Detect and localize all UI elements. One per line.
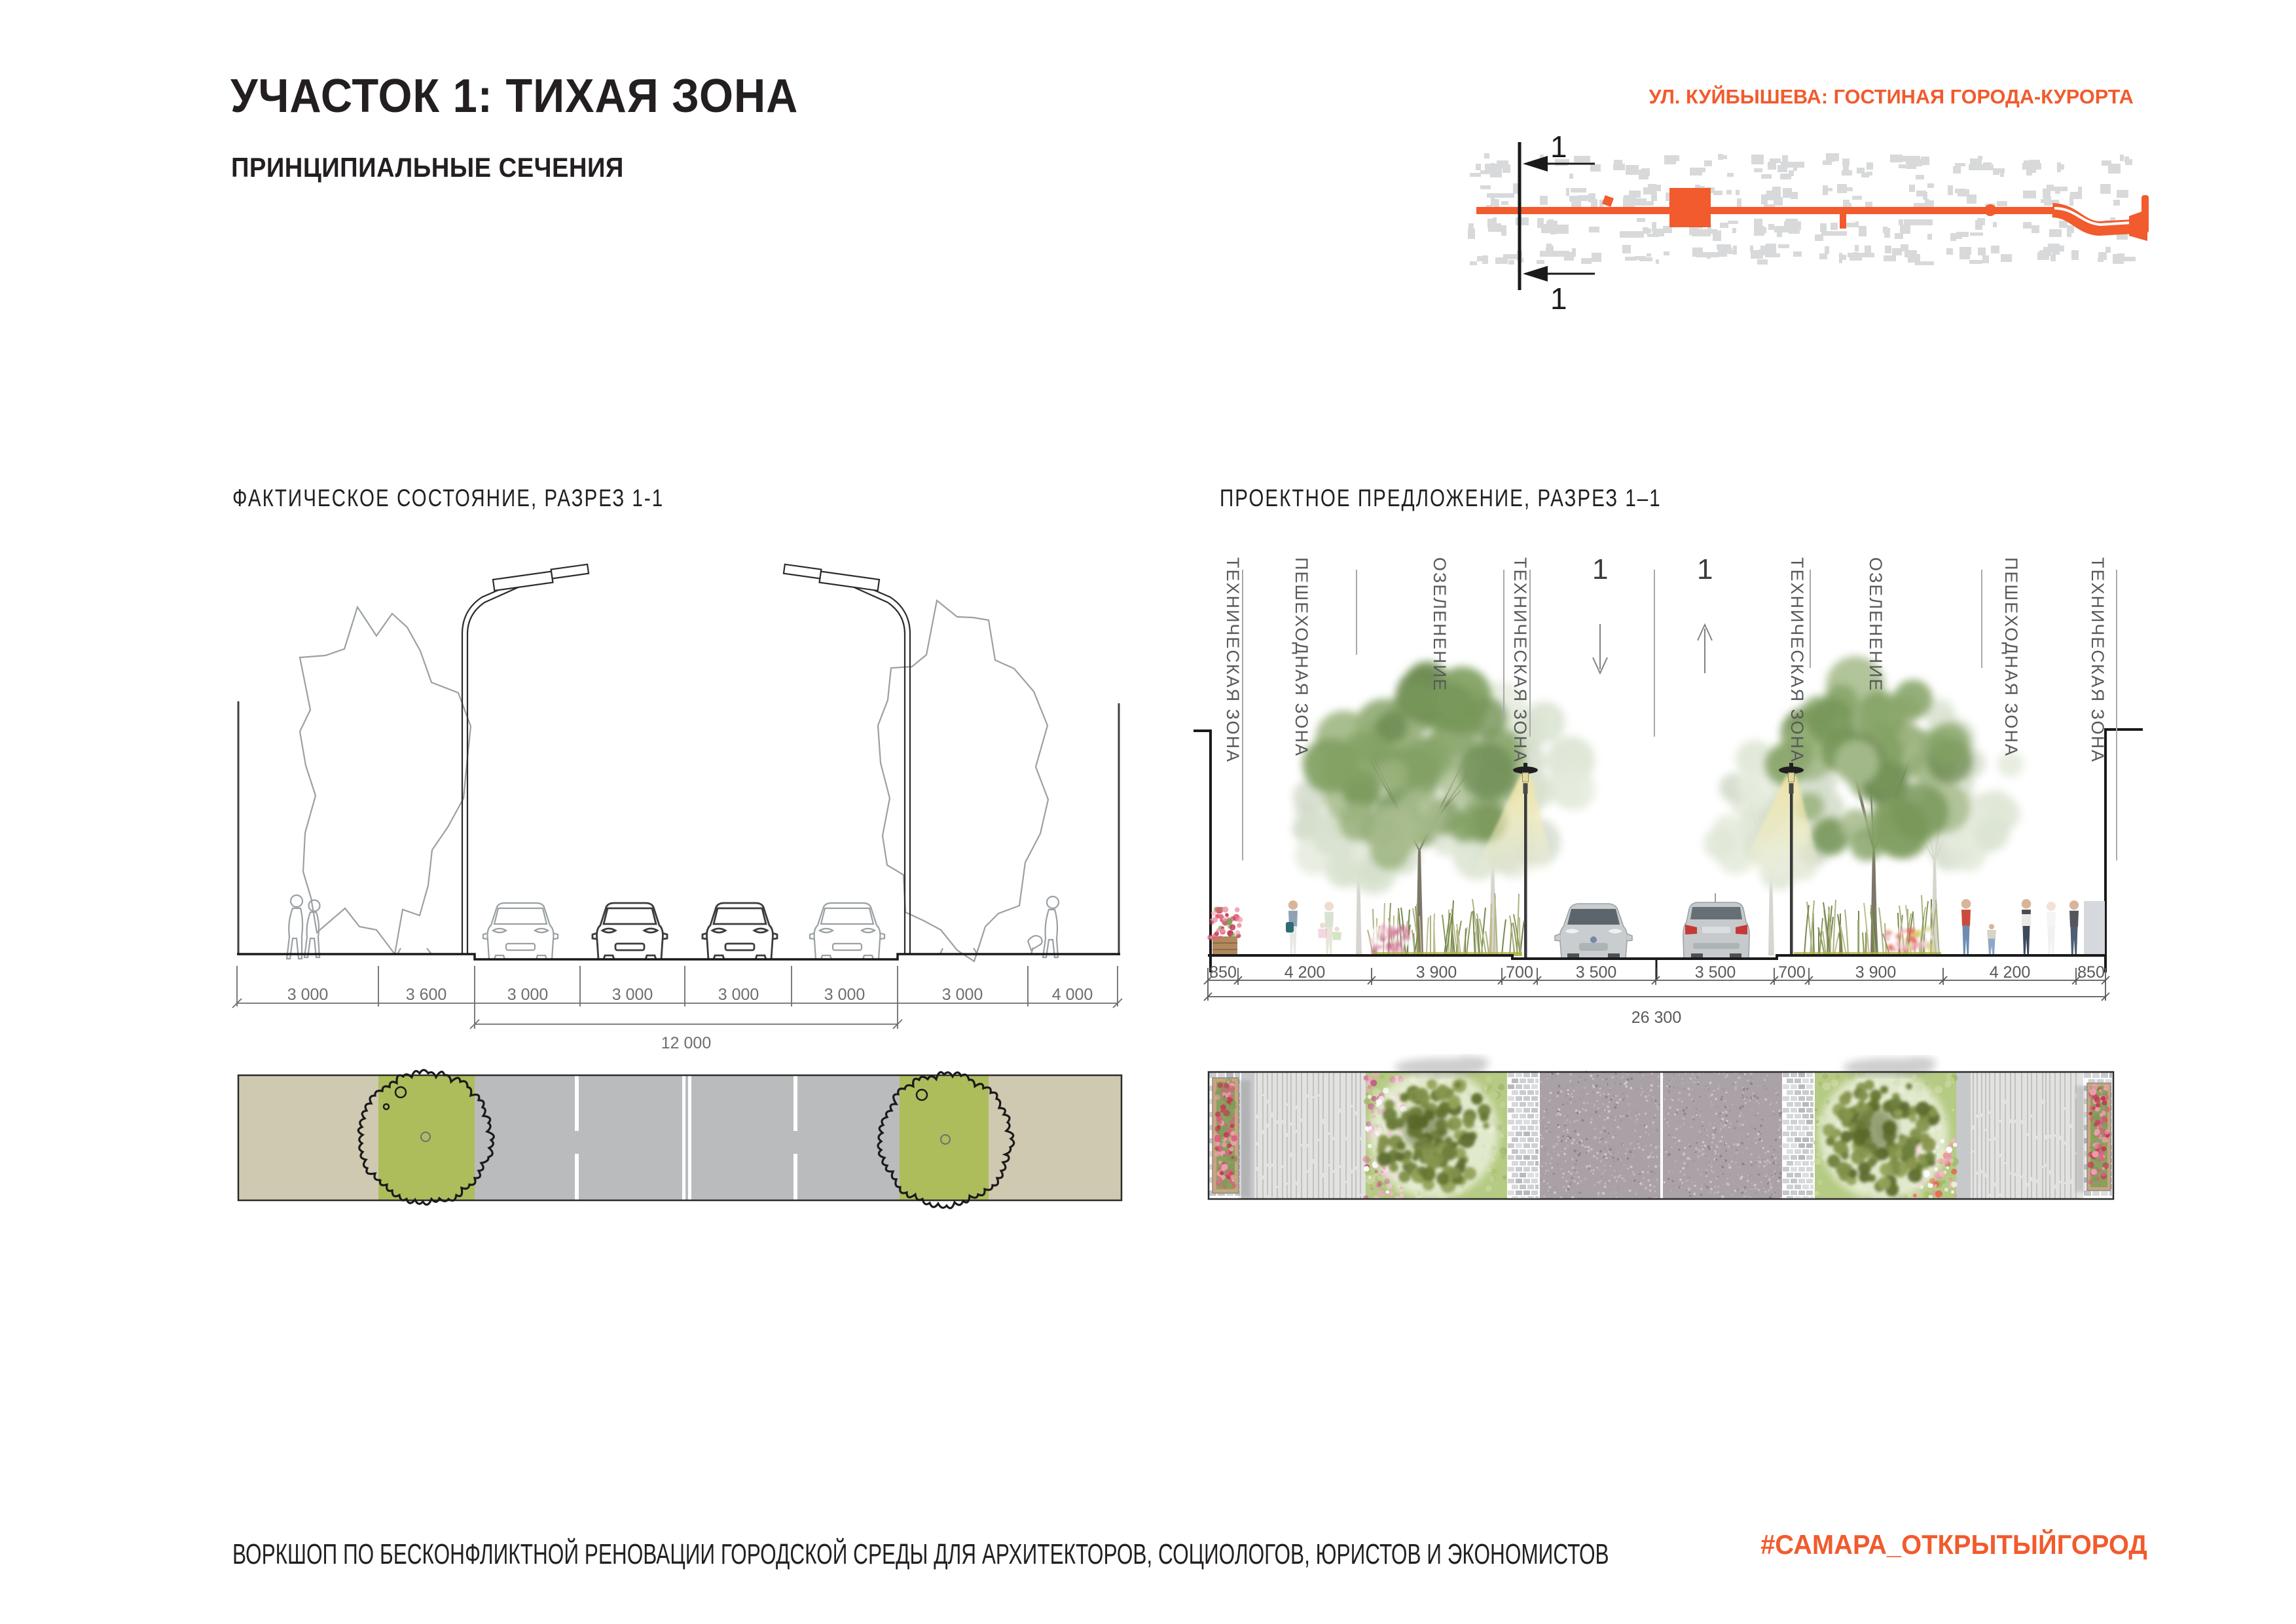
svg-text:3 000: 3 000 [287,986,329,1004]
svg-text:3 500: 3 500 [1576,963,1617,982]
svg-text:3 500: 3 500 [1695,963,1736,982]
svg-text:3 000: 3 000 [824,986,866,1004]
svg-text:4 200: 4 200 [1285,963,1326,982]
svg-text:700: 700 [1778,963,1806,982]
svg-text:3 900: 3 900 [1416,963,1457,982]
svg-text:ТЕХНИЧЕСКАЯ ЗОНА: ТЕХНИЧЕСКАЯ ЗОНА [1223,557,1243,763]
svg-text:1: 1 [1592,553,1608,585]
svg-text:ТЕХНИЧЕСКАЯ ЗОНА: ТЕХНИЧЕСКАЯ ЗОНА [2088,557,2107,763]
svg-text:3 600: 3 600 [406,986,447,1004]
svg-text:3 000: 3 000 [612,986,653,1004]
svg-text:ПЕШЕХОДНАЯ ЗОНА: ПЕШЕХОДНАЯ ЗОНА [2001,557,2021,757]
svg-text:3 000: 3 000 [718,986,759,1004]
svg-text:ПЕШЕХОДНАЯ ЗОНА: ПЕШЕХОДНАЯ ЗОНА [1292,557,1311,757]
svg-text:26 300: 26 300 [1631,1008,1681,1027]
svg-text:ОЗЕЛЕНЕНИЕ: ОЗЕЛЕНЕНИЕ [1866,557,1886,692]
svg-text:1: 1 [1550,130,1567,164]
svg-text:4 200: 4 200 [1990,963,2031,982]
svg-text:12 000: 12 000 [661,1034,711,1052]
svg-text:3 000: 3 000 [507,986,549,1004]
svg-text:ОЗЕЛЕНЕНИЕ: ОЗЕЛЕНЕНИЕ [1430,557,1449,692]
svg-text:3 000: 3 000 [942,986,983,1004]
svg-text:ТЕХНИЧЕСКАЯ ЗОНА: ТЕХНИЧЕСКАЯ ЗОНА [1787,557,1807,763]
svg-text:3 900: 3 900 [1855,963,1897,982]
svg-text:1: 1 [1550,282,1567,316]
svg-text:1: 1 [1697,553,1713,585]
svg-text:4 000: 4 000 [1052,986,1093,1004]
svg-text:700: 700 [1506,963,1533,982]
svg-text:850: 850 [2077,963,2105,982]
svg-text:850: 850 [1209,963,1237,982]
svg-text:ТЕХНИЧЕСКАЯ ЗОНА: ТЕХНИЧЕСКАЯ ЗОНА [1510,557,1530,763]
